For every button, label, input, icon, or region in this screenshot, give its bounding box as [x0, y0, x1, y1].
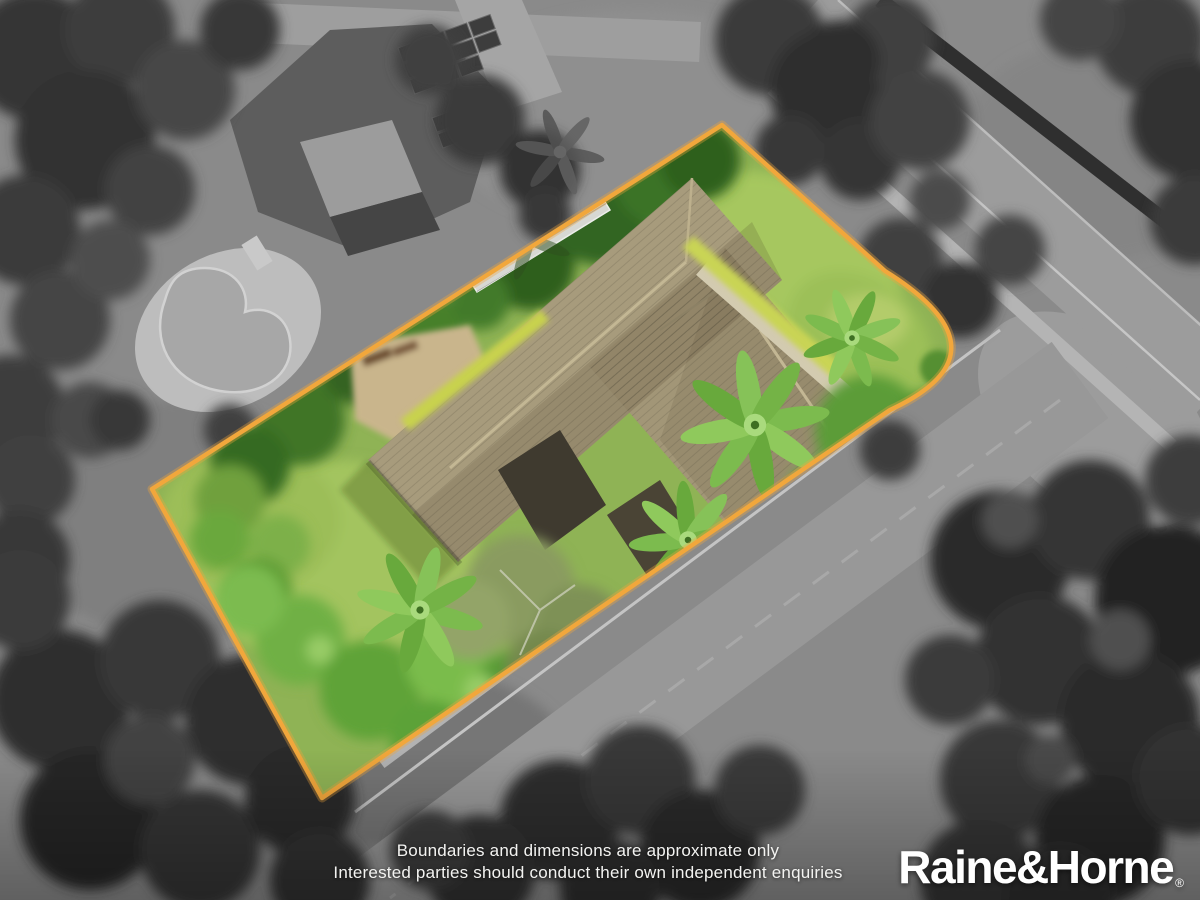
- aerial-property-photo: Boundaries and dimensions are approximat…: [0, 0, 1200, 900]
- brand-logo-text: Raine&Horne: [898, 841, 1173, 893]
- registered-mark-icon: ®: [1175, 876, 1184, 890]
- brand-logo: Raine&Horne®: [898, 840, 1184, 894]
- aerial-scene: [0, 0, 1200, 900]
